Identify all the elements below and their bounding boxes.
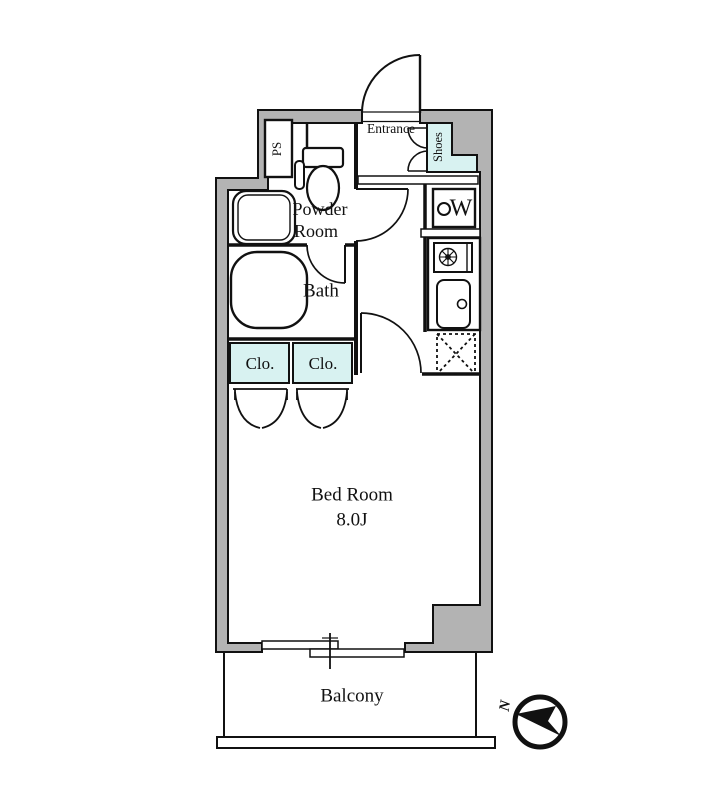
refrigerator-space	[437, 334, 475, 374]
entrance-step-edge	[358, 176, 478, 184]
balcony-railing	[217, 737, 495, 748]
powder-sink	[233, 191, 295, 244]
entrance-door-arc	[362, 55, 420, 113]
bedroom-door-arc	[361, 313, 421, 373]
ps-label: PS	[269, 142, 284, 156]
washing-machine-label: W	[450, 196, 473, 222]
bedroom-size-label: 8.0J	[336, 509, 367, 530]
balcony-label: Balcony	[320, 685, 384, 706]
bath-door	[307, 245, 345, 283]
entrance-label: Entrance	[367, 121, 415, 136]
burner-icon	[440, 249, 457, 266]
bedroom-door	[361, 313, 421, 373]
entrance-door	[362, 55, 420, 122]
bathtub	[231, 252, 307, 328]
kitchen-sink	[437, 280, 470, 328]
powder-room-label-line1: Powder	[293, 199, 348, 219]
sliding-window	[262, 633, 404, 669]
kitchen-counter-edge	[421, 229, 480, 237]
compass: N	[496, 697, 565, 747]
north-label: N	[496, 698, 514, 714]
closet-folding-doors	[233, 389, 349, 428]
powder-room-door-arc	[356, 189, 408, 241]
floor-plan-page: N Entrance Shoes PS Powder Room Bath Clo…	[0, 0, 709, 800]
powder-room-label-line2: Room	[294, 221, 338, 241]
shoes-label: Shoes	[431, 132, 445, 162]
closet-left-label: Clo.	[246, 354, 275, 373]
bedroom-label: Bed Room	[311, 484, 393, 505]
bath-door-arc	[307, 245, 345, 283]
closet-right-label: Clo.	[309, 354, 338, 373]
powder-room-door	[356, 189, 408, 241]
bath-label: Bath	[303, 280, 339, 301]
floor-plan-drawing: N Entrance Shoes PS Powder Room Bath Clo…	[0, 0, 709, 800]
